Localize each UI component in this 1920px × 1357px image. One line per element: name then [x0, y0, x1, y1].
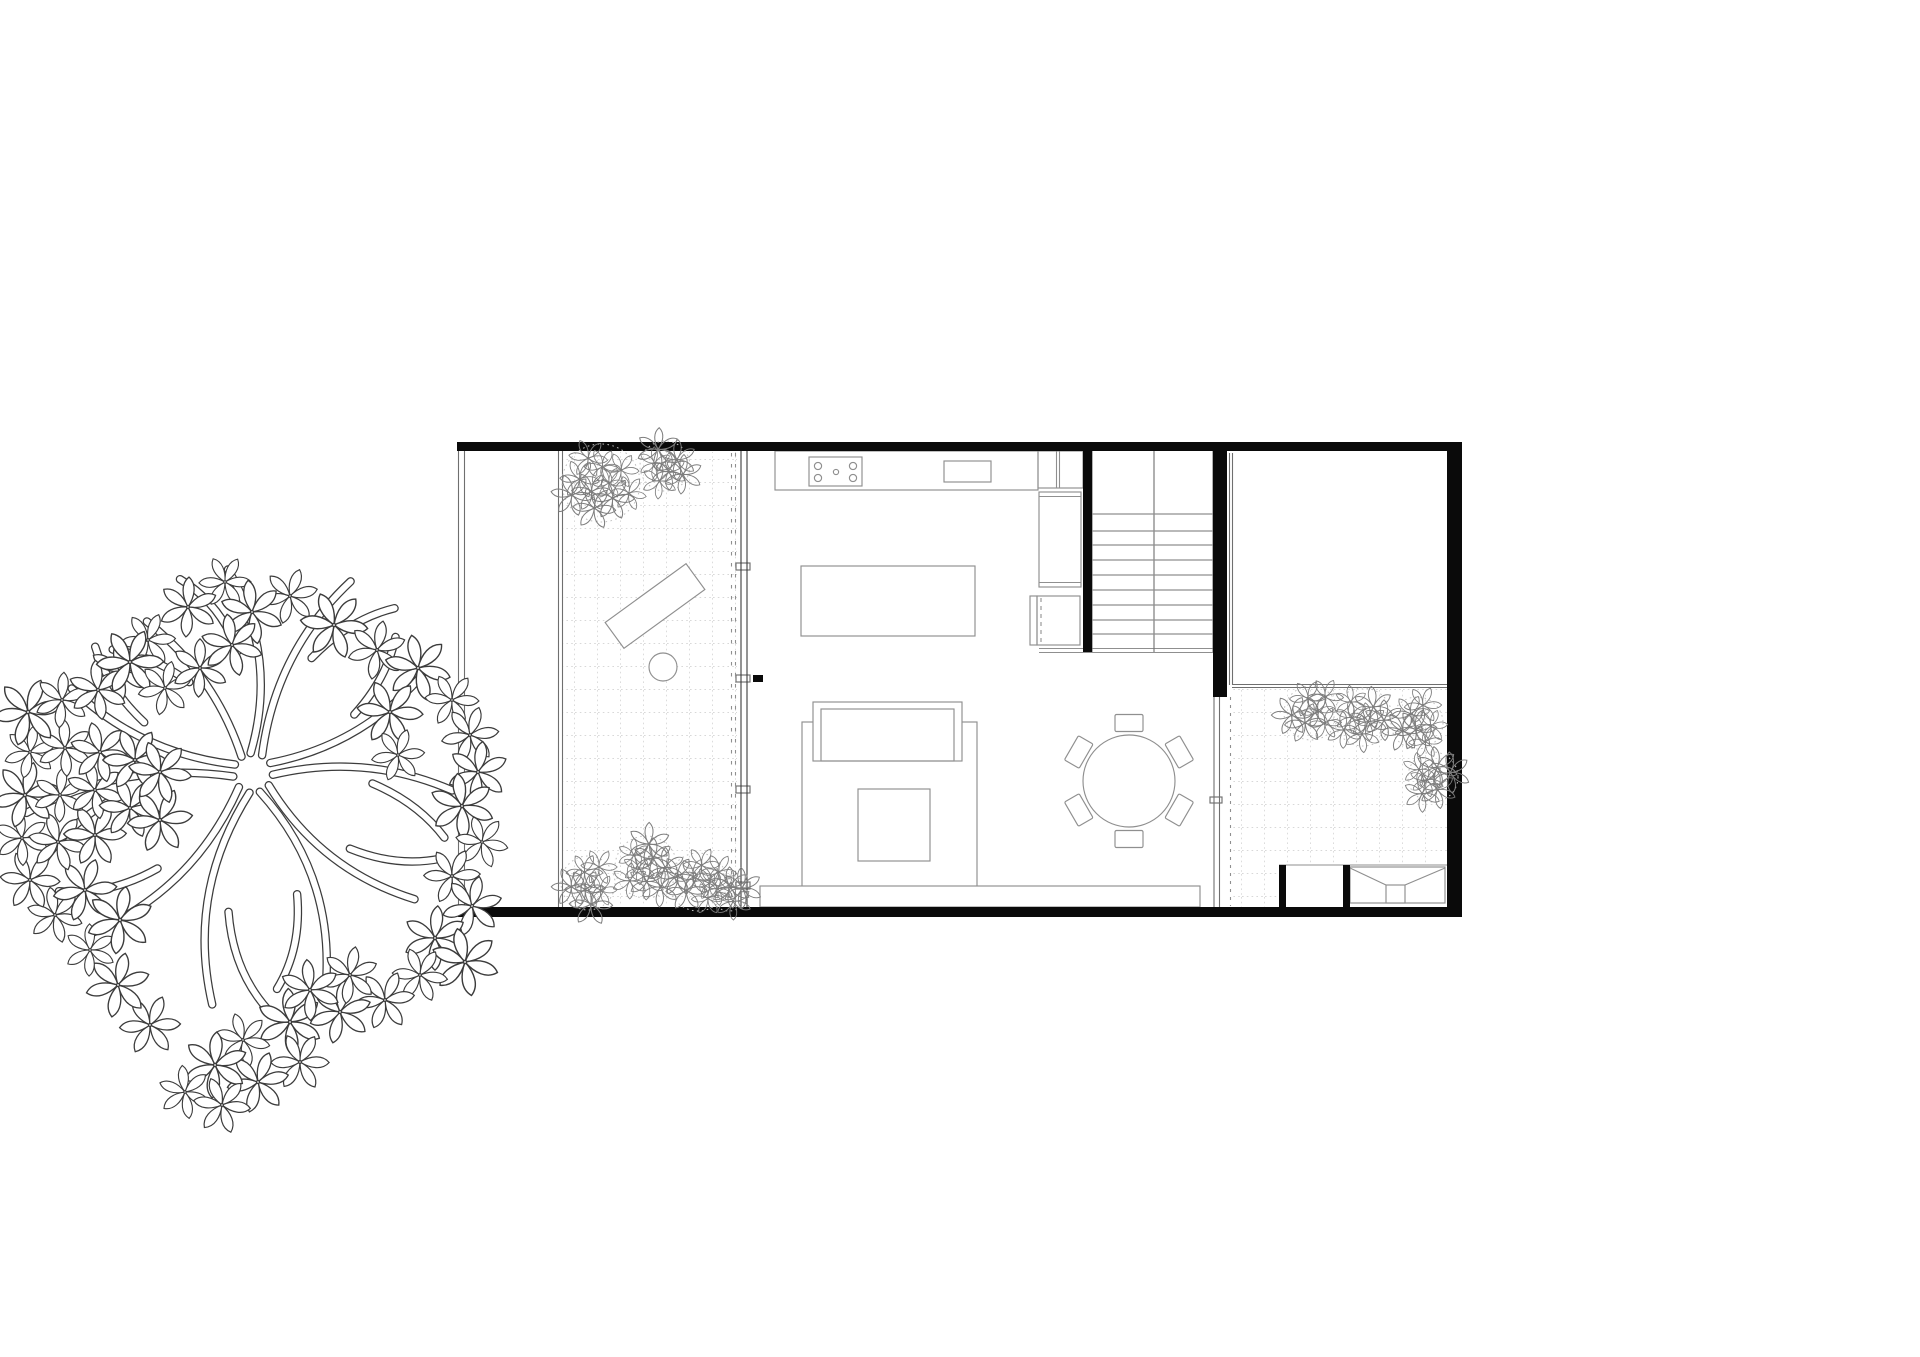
fireplace-diag-right — [1405, 868, 1445, 885]
court-divider-east — [1232, 685, 1449, 688]
sofa-outer — [813, 702, 962, 761]
oven — [1037, 596, 1080, 645]
floor-plan-sheet — [0, 0, 1920, 1357]
patio-table — [649, 653, 677, 681]
tree-branch-outline — [229, 912, 269, 1010]
burner-4 — [849, 474, 856, 481]
wall-east — [1447, 442, 1462, 917]
pier-storage-west — [1279, 865, 1286, 908]
paving-layer — [563, 452, 1447, 907]
courtyard-west-paving — [563, 452, 737, 906]
cabinet-divider — [1057, 451, 1060, 488]
wall-stair-west — [1083, 449, 1092, 652]
floor-step — [760, 886, 1200, 907]
fireplace-diag-left — [1350, 868, 1386, 885]
burner-2 — [849, 462, 856, 469]
dining-chair-4 — [1115, 831, 1143, 848]
tree-branch-outline — [269, 785, 415, 899]
cabinet-cell — [1038, 451, 1083, 488]
staircase — [1092, 449, 1213, 652]
tree-branch-inner — [350, 849, 442, 862]
tree-branch-inner — [269, 785, 415, 899]
stair-base-line — [1039, 649, 1213, 653]
dining-chair-1 — [1115, 715, 1143, 732]
courtyard-east-paving — [1233, 688, 1447, 864]
fireplace-core — [1386, 885, 1405, 903]
wall-north — [457, 442, 1455, 451]
oven-side-panel — [1030, 596, 1037, 645]
wall-stair-east — [1213, 451, 1227, 697]
coffee-table — [858, 789, 930, 861]
burner-1 — [814, 462, 821, 469]
tree-branch-inner — [273, 767, 452, 791]
kitchen-sink — [944, 461, 991, 482]
floor-plan-drawing — [0, 0, 1920, 1357]
dining-table — [1083, 735, 1175, 827]
track-tick — [1210, 797, 1222, 803]
kitchen-island — [801, 566, 975, 636]
facade-tick-3 — [736, 786, 750, 793]
burner-3 — [814, 474, 821, 481]
tall-cabinet — [1039, 492, 1081, 587]
glass-partition-east — [1230, 453, 1233, 685]
facade-tick-1 — [736, 563, 750, 570]
tree-illustration — [0, 557, 518, 1138]
facade-tick-2 — [736, 675, 750, 682]
courtyard-east-paving-south — [1233, 864, 1279, 907]
courtyard-west-edge — [559, 451, 563, 907]
pier-storage-mid — [1343, 865, 1350, 908]
burner-center — [833, 469, 838, 474]
facade-post — [753, 675, 763, 682]
